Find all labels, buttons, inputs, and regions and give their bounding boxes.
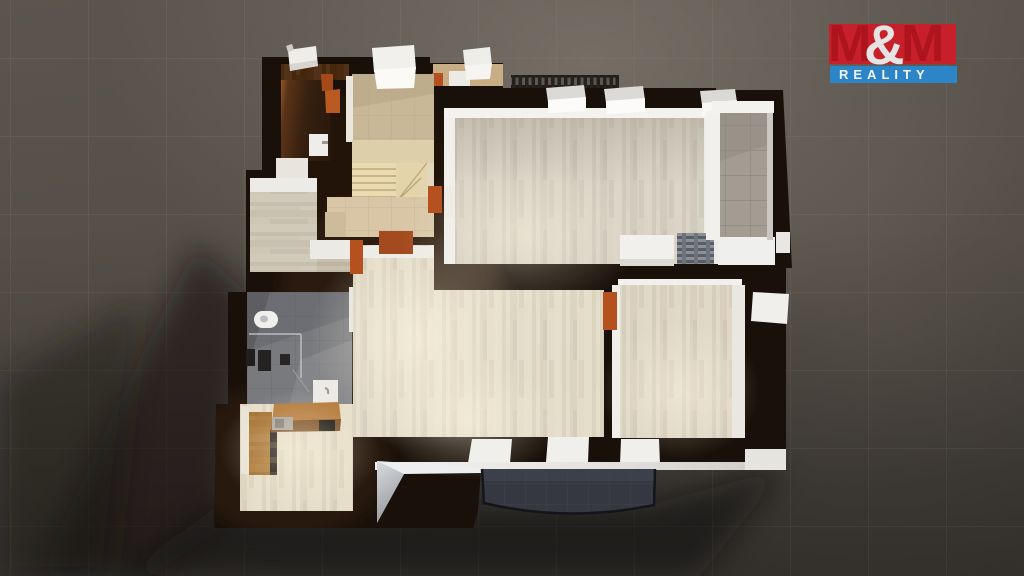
svg-text:REALITY: REALITY <box>839 67 930 82</box>
svg-text:M: M <box>901 15 944 73</box>
